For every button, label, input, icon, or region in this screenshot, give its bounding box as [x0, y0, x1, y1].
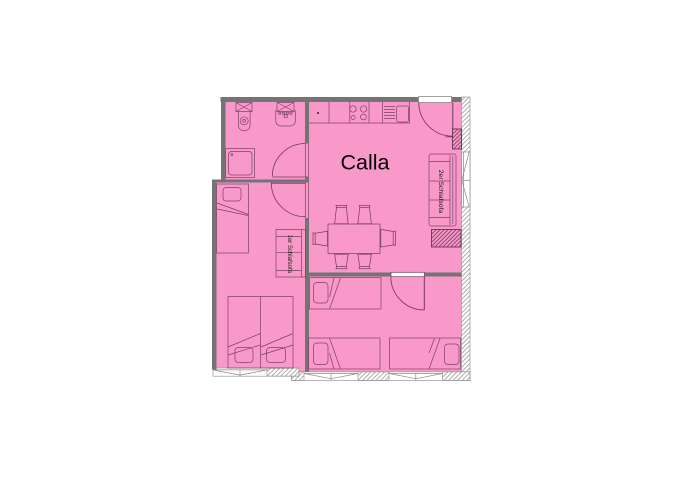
svg-text:1er Schlafsofa: 1er Schlafsofa: [286, 235, 292, 274]
svg-text:2er Schlafsofa: 2er Schlafsofa: [437, 170, 444, 214]
svg-text:Calla: Calla: [341, 151, 390, 175]
